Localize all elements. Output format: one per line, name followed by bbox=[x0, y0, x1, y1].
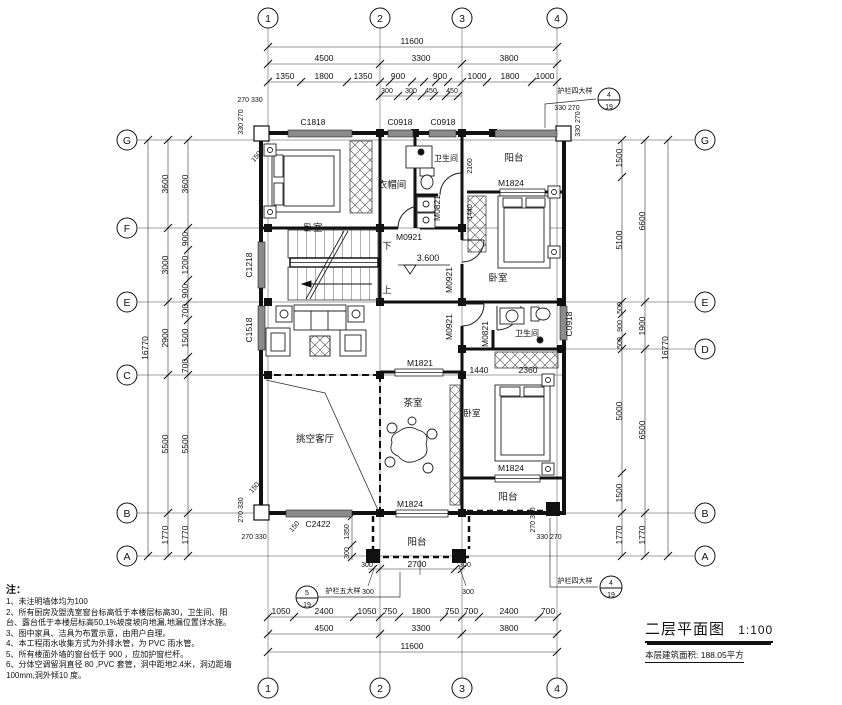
toilet-mid bbox=[531, 307, 550, 321]
balcony-post bbox=[546, 502, 560, 516]
nightstand bbox=[548, 246, 560, 258]
dim: 1900 bbox=[637, 316, 647, 335]
label-m0821-a: M0821 bbox=[432, 195, 442, 221]
dim: 5500 bbox=[160, 434, 170, 453]
dim: 500 bbox=[617, 302, 624, 314]
dim: 150 bbox=[288, 520, 301, 534]
balcony-window-band bbox=[495, 130, 557, 137]
dim: 6600 bbox=[637, 211, 647, 230]
dim: 700 bbox=[180, 304, 190, 318]
dim: 1500 bbox=[614, 483, 624, 502]
room-bath-mid: 卫生间 bbox=[515, 328, 539, 338]
label-m0821-b: M0821 bbox=[480, 321, 490, 347]
balcony-post bbox=[452, 549, 466, 563]
label-c2422: C2422 bbox=[305, 519, 330, 529]
axis-top-1: 1 bbox=[265, 13, 271, 25]
label-c1818: C1818 bbox=[300, 117, 325, 127]
bed-r bbox=[498, 196, 550, 268]
dim: 11600 bbox=[400, 36, 423, 46]
void-diagonal bbox=[266, 380, 378, 510]
dim: 300 bbox=[362, 589, 374, 596]
callout-rail5-bottom: 5 19 护栏五大样 bbox=[296, 572, 400, 609]
top-dimensions: 11600 4500 3300 3800 1350 1800 1350 900 … bbox=[276, 36, 555, 95]
axis-right-b: B bbox=[701, 508, 708, 520]
axis-left-g: G bbox=[123, 135, 131, 147]
window-c0918-a bbox=[388, 130, 413, 137]
callout-number: 5 bbox=[305, 590, 309, 597]
note-item: 4、本工程雨水收集方式为外排水管，为 PVC 雨水管。 bbox=[6, 639, 238, 650]
dim: 900 bbox=[180, 232, 190, 246]
axis-top-3: 3 bbox=[459, 13, 465, 25]
nightstand bbox=[264, 144, 276, 156]
label-c1218: C1218 bbox=[244, 252, 254, 277]
floor-area-note: 本层建筑面积: 188.05平方 bbox=[645, 649, 744, 663]
dim: 1800 bbox=[315, 71, 334, 81]
stair-up-label: 上 bbox=[382, 285, 391, 295]
dim: 1770 bbox=[614, 525, 624, 544]
title-block: 二层平面图 1:100 本层建筑面积: 188.05平方 bbox=[645, 618, 835, 663]
staircase bbox=[288, 230, 378, 300]
drawing-title: 二层平面图 1:100 bbox=[645, 618, 773, 643]
tea-table-set bbox=[385, 417, 437, 473]
tv-cabinet bbox=[310, 336, 330, 356]
dim: 1440 bbox=[467, 204, 474, 220]
drawing-scale: 1:100 bbox=[738, 623, 773, 637]
dim: 3600 bbox=[180, 174, 190, 193]
label-m1824-b: M1824 bbox=[498, 463, 524, 473]
axis-right-a: A bbox=[701, 551, 708, 563]
dim: 270 330 bbox=[238, 497, 245, 522]
toilet-top bbox=[420, 168, 434, 189]
dim: 1050 bbox=[272, 606, 291, 616]
dim: 16770 bbox=[140, 336, 150, 360]
dim: 1500 bbox=[180, 328, 190, 347]
left-dimensions: 16770 3600 3000 2900 5500 1770 3600 900 … bbox=[140, 174, 190, 544]
dim: 1500 bbox=[614, 148, 624, 167]
label-c1518: C1518 bbox=[244, 317, 254, 342]
axis-right-d: D bbox=[701, 344, 709, 356]
axis-left-c: C bbox=[123, 370, 131, 382]
dim: 1000 bbox=[468, 71, 487, 81]
dim: 700 bbox=[541, 606, 555, 616]
dim: 300 bbox=[462, 589, 474, 596]
window-c1818 bbox=[288, 130, 352, 137]
axis-left-f: F bbox=[124, 223, 130, 235]
dim: 300 bbox=[405, 88, 417, 95]
dim: 900 bbox=[391, 71, 405, 81]
callout-label: 护栏五大样 bbox=[326, 586, 361, 595]
dim: 2360 bbox=[519, 365, 538, 375]
dim: 330 270 bbox=[575, 111, 582, 136]
dim: 300 bbox=[381, 88, 393, 95]
bottom-dimensions: 1050 2400 1050 750 1800 750 700 2400 700… bbox=[272, 606, 556, 651]
nightstand bbox=[548, 186, 560, 198]
room-bath-top: 卫生间 bbox=[434, 153, 458, 163]
dim: 1800 bbox=[501, 71, 520, 81]
axis-right-g: G bbox=[701, 135, 709, 147]
bed-br bbox=[495, 385, 550, 461]
callout-sheet: 19 bbox=[605, 104, 613, 111]
callout-number: 4 bbox=[607, 92, 611, 99]
dim: 1770 bbox=[180, 525, 190, 544]
dim: 5500 bbox=[180, 434, 190, 453]
label-c0918-a: C0918 bbox=[387, 117, 412, 127]
level-mark bbox=[398, 265, 450, 274]
room-bedroom-br: 卧室 bbox=[463, 408, 481, 418]
level-value: 3.600 bbox=[417, 253, 440, 263]
note-item: 1、未注明墙体均为100 bbox=[6, 597, 238, 608]
callout-sheet: 19 bbox=[607, 592, 615, 599]
stair-down-label: 下 bbox=[382, 241, 391, 251]
window-c1218 bbox=[258, 242, 265, 288]
window-c2422 bbox=[286, 510, 352, 517]
title-text: 二层平面图 bbox=[645, 621, 725, 638]
axis-left-b: B bbox=[123, 508, 130, 520]
nightstand bbox=[542, 374, 554, 386]
dim: 270 330 bbox=[237, 97, 262, 104]
label-c0918-b: C0918 bbox=[430, 117, 455, 127]
dim: 1350 bbox=[354, 71, 373, 81]
label-m1824-a: M1824 bbox=[498, 178, 524, 188]
dim: 270 330 bbox=[241, 534, 266, 541]
room-balcony-tr: 阳台 bbox=[504, 152, 523, 164]
dim: 3300 bbox=[412, 623, 431, 633]
note-item: 6、分体空调留洞直径 80 ,PVC 套管，洞中距地2.4米，洞边距墙 100m… bbox=[6, 660, 238, 681]
dim: 3800 bbox=[500, 623, 519, 633]
dim: 1050 bbox=[358, 606, 377, 616]
callout-label: 护栏四大样 bbox=[558, 576, 593, 585]
dim: 450 bbox=[446, 88, 458, 95]
dim: 900 bbox=[617, 320, 624, 332]
callout-rail4-bottom: 4 19 护栏四大样 bbox=[550, 518, 622, 599]
note-item: 2、所有厨房及盥洗室窗台标高低于本楼层标高30，卫生间、阳台、露台低于本楼层标高… bbox=[6, 608, 238, 629]
dim: 2700 bbox=[408, 559, 427, 569]
axis-bottom-2: 2 bbox=[377, 683, 383, 695]
dim: 1800 bbox=[412, 606, 431, 616]
wardrobe-tl bbox=[350, 141, 372, 213]
room-living-void: 挑空客厅 bbox=[296, 433, 335, 445]
notes-heading: 注： bbox=[6, 584, 238, 597]
dim: 1770 bbox=[637, 525, 647, 544]
floor-plan-sheet: 1 2 3 4 1 2 3 4 G F E C B A G E D B A 11… bbox=[0, 0, 842, 705]
axis-left-a: A bbox=[123, 551, 130, 563]
dim: 1000 bbox=[536, 71, 555, 81]
dim: 6500 bbox=[637, 420, 647, 439]
general-notes: 注： 1、未注明墙体均为100 2、所有厨房及盥洗室窗台标高低于本楼层标高30，… bbox=[6, 584, 238, 682]
dim: 300 bbox=[344, 547, 351, 559]
dim: 2160 bbox=[467, 158, 474, 174]
callout-sheet: 19 bbox=[303, 602, 311, 609]
note-item: 5、所有楼面外墙的窗台低于 900 ，应加护窗栏杆。 bbox=[6, 650, 238, 661]
window-c0918-b bbox=[429, 130, 456, 137]
dim: 900 bbox=[180, 284, 190, 298]
door-m0821-a bbox=[440, 173, 462, 195]
dim: 3300 bbox=[412, 53, 431, 63]
label-c0918-r: C0918 bbox=[564, 311, 574, 336]
dim: 3000 bbox=[160, 255, 170, 274]
dim: 1770 bbox=[160, 525, 170, 544]
dim: 2400 bbox=[315, 606, 334, 616]
dim: 330 270 bbox=[238, 109, 245, 134]
room-tea: 茶室 bbox=[403, 397, 422, 409]
label-m1824-c: M1824 bbox=[397, 499, 423, 509]
dim: 750 bbox=[445, 606, 459, 616]
dim: 3600 bbox=[160, 174, 170, 193]
axis-bottom-3: 3 bbox=[459, 683, 465, 695]
axis-bottom-1: 1 bbox=[265, 683, 271, 695]
dim: 16770 bbox=[660, 336, 670, 360]
dim: 2400 bbox=[500, 606, 519, 616]
callout-number: 4 bbox=[609, 580, 613, 587]
dim: 750 bbox=[383, 606, 397, 616]
callout-label: 护栏四大样 bbox=[558, 86, 593, 95]
dim: 330 270 bbox=[554, 105, 579, 112]
dim: 4500 bbox=[315, 623, 334, 633]
dim: 900 bbox=[433, 71, 447, 81]
sink-mid bbox=[500, 308, 524, 324]
window-c1518 bbox=[258, 306, 265, 350]
dim: 5000 bbox=[614, 401, 624, 420]
dim: 700 bbox=[464, 606, 478, 616]
dim: 450 bbox=[425, 88, 437, 95]
dim: 3800 bbox=[500, 53, 519, 63]
note-item: 3、图中家具、洁具为布置示意，由用户自理。 bbox=[6, 629, 238, 640]
room-balcony-br: 阳台 bbox=[498, 491, 517, 503]
dim: 5100 bbox=[614, 230, 624, 249]
dim: 330 270 bbox=[536, 534, 561, 541]
bath-fitting bbox=[418, 149, 424, 155]
label-m1821: M1821 bbox=[407, 358, 433, 368]
dim: 11600 bbox=[400, 641, 423, 651]
axis-left-e: E bbox=[123, 297, 130, 309]
dim: 1440 bbox=[470, 365, 489, 375]
axis-top-2: 2 bbox=[377, 13, 383, 25]
room-balcony-b: 阳台 bbox=[407, 536, 426, 548]
dim: 1350 bbox=[344, 524, 351, 540]
dim: 2900 bbox=[160, 328, 170, 347]
axis-top-4: 4 bbox=[554, 13, 560, 25]
dim: 300 bbox=[361, 562, 373, 569]
dim: 700 bbox=[180, 359, 190, 373]
dim: 1200 bbox=[180, 255, 190, 274]
room-closet: 衣帽间 bbox=[378, 179, 407, 191]
label-m0921-b: M0921 bbox=[444, 267, 454, 293]
nightstand bbox=[264, 206, 276, 218]
dim: 1350 bbox=[276, 71, 295, 81]
bed-tl bbox=[272, 150, 340, 212]
axis-bottom-4: 4 bbox=[554, 683, 560, 695]
dim: 500 bbox=[617, 337, 624, 349]
right-dimensions: 16770 6600 1900 6500 1770 1500 5100 500 … bbox=[614, 148, 670, 544]
axis-right-e: E bbox=[701, 297, 708, 309]
label-m0921-a: M0921 bbox=[396, 232, 422, 242]
room-bedroom-tl: 卧室 bbox=[303, 222, 322, 234]
room-bedroom-r: 卧室 bbox=[488, 272, 507, 284]
dim: 300 bbox=[459, 562, 471, 569]
balcony-post bbox=[366, 549, 380, 563]
label-m0921-c: M0921 bbox=[444, 314, 454, 340]
tea-room-window-band bbox=[450, 385, 460, 505]
dim: 4500 bbox=[315, 53, 334, 63]
nightstand bbox=[542, 463, 554, 475]
